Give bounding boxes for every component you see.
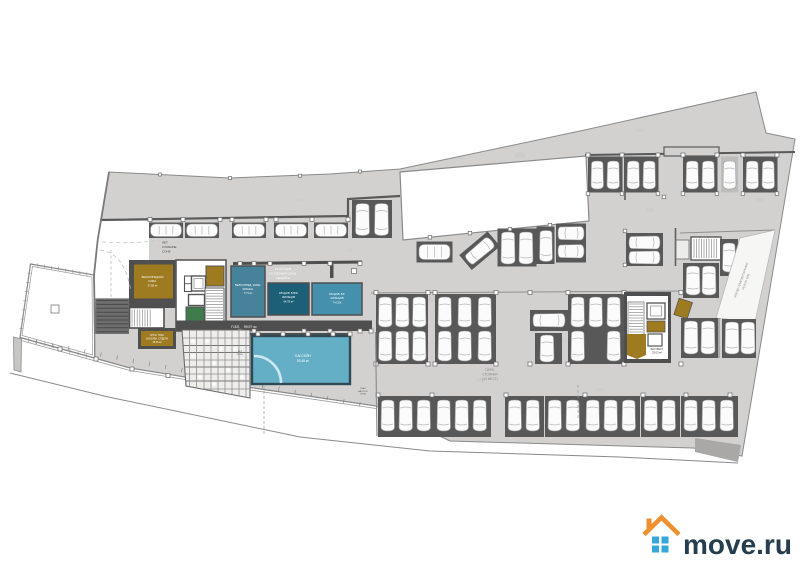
svg-text:ЗАСЕЛЕН. ОТДЕЛА: ЗАСЕЛЕН. ОТДЕЛА — [146, 338, 169, 341]
svg-text:СЕКЦ.: СЕКЦ. — [237, 354, 244, 356]
svg-text:53.48 м²: 53.48 м² — [297, 359, 309, 363]
svg-text:74 СЕК: 74 СЕК — [333, 300, 342, 304]
svg-text:СЕКЦ: СЕКЦ — [360, 394, 366, 396]
svg-text:15.06 м²: 15.06 м² — [152, 341, 161, 344]
svg-text:ЖИЛЬЦОВ: ЖИЛЬЦОВ — [282, 295, 296, 299]
svg-text:СОНЕ: СОНЕ — [162, 250, 171, 254]
svg-text:СТОЯНИЕ: СТОЯНИЕ — [162, 245, 177, 249]
svg-text:КЛАДОВ. БЛ.: КЛАДОВ. БЛ. — [329, 292, 345, 296]
svg-text:ВЕЛОСИПЕД. КОМН.: ВЕЛОСИПЕД. КОМН. — [235, 283, 261, 287]
svg-text:ХРАНЕН.: ХРАНЕН. — [242, 287, 253, 291]
svg-text:Т.БАС: Т.БАС — [360, 387, 366, 390]
svg-text:64.78 м²: 64.78 м² — [284, 299, 294, 303]
svg-text:ЖИЛЬЦОВ: ЖИЛЬЦОВ — [330, 296, 344, 300]
svg-text:КЛАДОВ. БЛОК: КЛАДОВ. БЛОК — [279, 291, 298, 295]
svg-text:СЕКЦИЙ м²: СЕКЦИЙ м² — [276, 276, 290, 280]
svg-text:ЛЕТ.: ЛЕТ. — [162, 241, 168, 245]
svg-text:КОМН.: КОМН. — [148, 279, 157, 283]
svg-text:П.БЛ. 99.97 м²: П.БЛ. 99.97 м² — [231, 325, 257, 329]
svg-text:27.88 м²: 27.88 м² — [148, 283, 158, 287]
svg-text:АУЛ: АУЛ — [238, 350, 243, 353]
svg-text:ПАРК.: ПАРК. — [485, 368, 494, 372]
svg-text:СЛУЖ. ПОМ.: СЛУЖ. ПОМ. — [150, 334, 165, 337]
svg-text:2Э СКЛАДОВ: 2Э СКЛАДОВ — [275, 267, 292, 271]
svg-text:ВЕЛОСИПЕДНАЯ: ВЕЛОСИПЕДНАЯ — [142, 275, 164, 279]
svg-text:БАССЕЙН: БАССЕЙН — [295, 354, 311, 358]
svg-text:СТОЯНКИ: СТОЯНКИ — [482, 373, 498, 377]
svg-text:23.03 м²: 23.03 м² — [652, 350, 662, 354]
svg-text:move.ru: move.ru — [683, 529, 792, 560]
svg-text:СО СТЕНАМИ СКЛАД.: СО СТЕНАМИ СКЛАД. — [269, 271, 297, 275]
svg-text:НАСОСН.: НАСОСН. — [358, 390, 368, 393]
svg-text:БАС ВЕСТ: БАС ВЕСТ — [651, 347, 664, 351]
svg-text:77.5 м²: 77.5 м² — [244, 291, 253, 295]
svg-text:(44 МЕСТ): (44 МЕСТ) — [482, 377, 497, 381]
